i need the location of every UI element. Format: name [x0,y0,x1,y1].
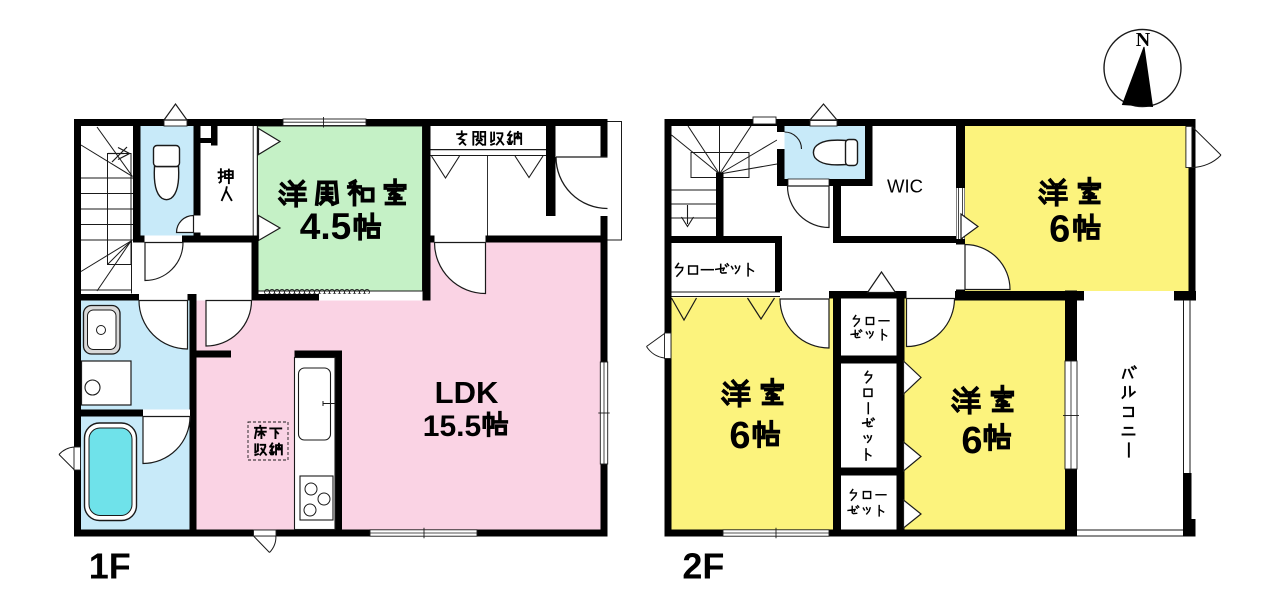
svg-text:6: 6 [729,415,750,457]
svg-text:WIC: WIC [887,176,923,197]
svg-text:LDK: LDK [435,375,499,410]
svg-text:4.5: 4.5 [300,206,351,247]
svg-text:6: 6 [961,420,982,462]
svg-text:N: N [1136,29,1151,51]
svg-text:6: 6 [1049,209,1070,251]
svg-text:1F: 1F [89,546,131,587]
svg-text:15.5: 15.5 [423,410,481,443]
svg-text:2F: 2F [682,546,724,587]
